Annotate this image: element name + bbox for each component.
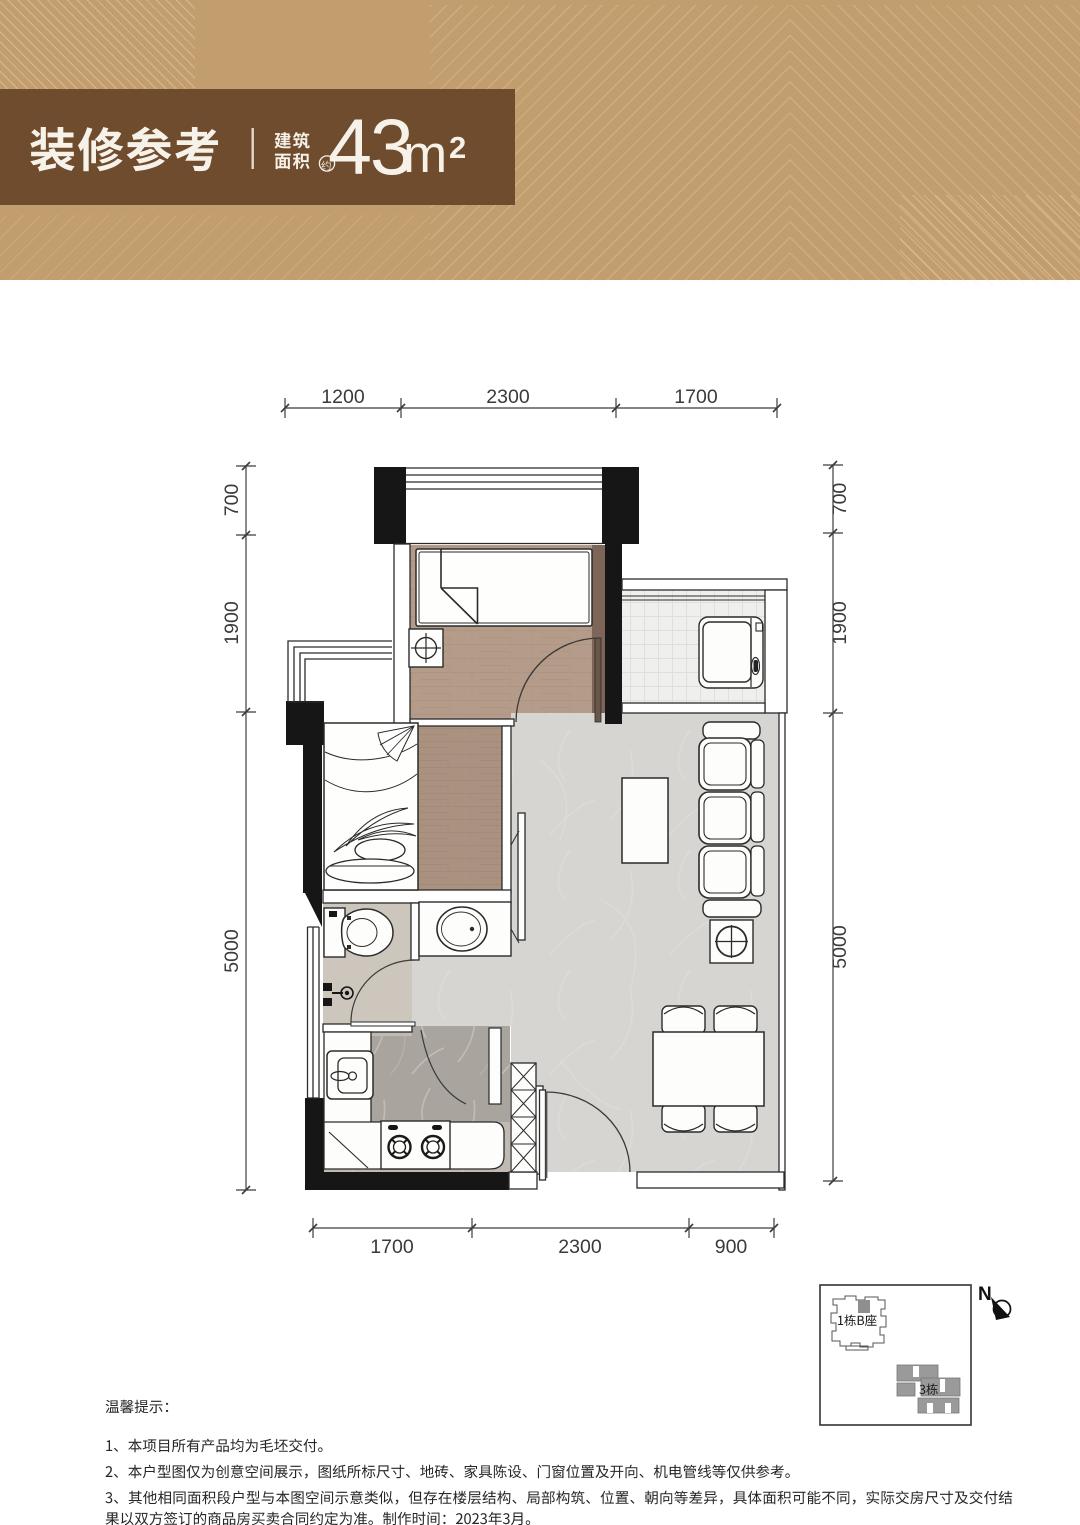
- svg-text:2300: 2300: [558, 1236, 602, 1258]
- svg-text:1900: 1900: [829, 601, 851, 645]
- svg-text:700: 700: [221, 484, 243, 517]
- svg-text:5000: 5000: [829, 925, 851, 969]
- svg-text:900: 900: [715, 1236, 748, 1258]
- svg-text:N: N: [978, 1284, 992, 1305]
- svg-text:5000: 5000: [221, 929, 243, 973]
- svg-text:1900: 1900: [221, 601, 243, 645]
- svg-text:1700: 1700: [370, 1236, 414, 1258]
- svg-text:2300: 2300: [486, 386, 530, 408]
- svg-text:700: 700: [829, 483, 851, 516]
- svg-text:1200: 1200: [321, 386, 365, 408]
- svg-text:1700: 1700: [674, 386, 718, 408]
